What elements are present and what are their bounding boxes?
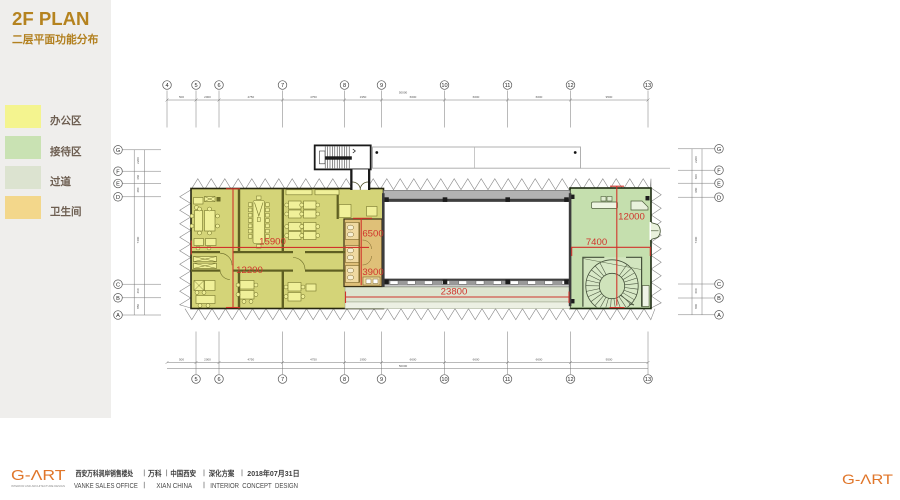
svg-text:13: 13 xyxy=(645,377,651,383)
svg-text:E: E xyxy=(116,182,120,188)
svg-text:6600: 6600 xyxy=(473,95,480,99)
svg-text:6600: 6600 xyxy=(410,95,417,99)
svg-text:460: 460 xyxy=(136,288,140,293)
svg-text:10: 10 xyxy=(441,83,447,89)
svg-text:6500: 6500 xyxy=(362,229,383,240)
svg-text:4750: 4750 xyxy=(247,95,254,99)
svg-text:4750: 4750 xyxy=(310,95,317,99)
svg-text:460: 460 xyxy=(136,174,140,179)
svg-text:INTERIOR AND ARCHITECTURE DESI: INTERIOR AND ARCHITECTURE DESIGN xyxy=(11,484,65,488)
svg-text:A: A xyxy=(717,313,721,319)
svg-text:980: 980 xyxy=(694,187,698,192)
svg-text:500: 500 xyxy=(179,95,184,99)
svg-text:2200: 2200 xyxy=(694,156,698,163)
svg-text:13: 13 xyxy=(645,83,651,89)
svg-text:480: 480 xyxy=(136,187,140,192)
svg-text:深化方案: 深化方案 xyxy=(209,468,235,478)
svg-text:5: 5 xyxy=(194,83,197,89)
svg-text:12: 12 xyxy=(567,83,573,89)
svg-text:C: C xyxy=(116,282,120,288)
svg-text:7400: 7400 xyxy=(694,236,698,243)
svg-text:C: C xyxy=(717,282,721,288)
svg-text:800: 800 xyxy=(694,304,698,309)
svg-text:9500: 9500 xyxy=(606,357,613,361)
svg-text:G-ΛRT: G-ΛRT xyxy=(11,468,66,484)
svg-text:B: B xyxy=(717,296,721,302)
svg-text:D: D xyxy=(717,195,721,201)
svg-text:6600: 6600 xyxy=(473,357,480,361)
svg-text:F: F xyxy=(717,168,721,174)
svg-text:1950: 1950 xyxy=(360,95,367,99)
svg-text:2000: 2000 xyxy=(204,95,211,99)
svg-text:9: 9 xyxy=(380,83,383,89)
svg-text:600: 600 xyxy=(694,174,698,179)
svg-text:4: 4 xyxy=(165,83,168,89)
svg-text:5: 5 xyxy=(194,377,197,383)
svg-text:12000: 12000 xyxy=(618,212,645,223)
svg-text:2000: 2000 xyxy=(204,357,211,361)
svg-text:E: E xyxy=(717,181,721,187)
svg-text:4750: 4750 xyxy=(247,357,254,361)
svg-text:3900: 3900 xyxy=(362,267,383,278)
svg-text:11: 11 xyxy=(505,83,511,89)
svg-text:6600: 6600 xyxy=(536,95,543,99)
svg-text:7400: 7400 xyxy=(136,236,140,243)
svg-text:D: D xyxy=(116,195,120,201)
svg-text:西安万科涧岸销售楼处: 西安万科涧岸销售楼处 xyxy=(76,468,134,478)
svg-text:11: 11 xyxy=(505,377,511,383)
svg-text:万科: 万科 xyxy=(147,468,162,478)
svg-text:中国西安: 中国西安 xyxy=(170,468,196,478)
svg-text:12200: 12200 xyxy=(236,265,263,276)
svg-text:4750: 4750 xyxy=(310,357,317,361)
svg-text:50000: 50000 xyxy=(399,91,408,95)
svg-text:8: 8 xyxy=(343,377,346,383)
svg-text:XIAN CHINA: XIAN CHINA xyxy=(156,481,193,490)
svg-text:1950: 1950 xyxy=(360,357,367,361)
svg-text:7: 7 xyxy=(281,377,284,383)
svg-text:9: 9 xyxy=(380,377,383,383)
svg-text:6: 6 xyxy=(217,83,220,89)
svg-text:500: 500 xyxy=(179,357,184,361)
svg-text:2200: 2200 xyxy=(136,157,140,164)
svg-text:9500: 9500 xyxy=(606,95,613,99)
svg-text:7400: 7400 xyxy=(586,237,607,248)
svg-text:10: 10 xyxy=(441,377,447,383)
svg-text:6: 6 xyxy=(217,377,220,383)
svg-text:B: B xyxy=(116,296,120,302)
svg-text:6600: 6600 xyxy=(410,357,417,361)
svg-text:23800: 23800 xyxy=(441,287,468,298)
svg-text:6600: 6600 xyxy=(536,357,543,361)
svg-text:G: G xyxy=(116,148,120,154)
svg-text:8: 8 xyxy=(343,83,346,89)
svg-text:15900: 15900 xyxy=(259,237,286,248)
svg-text:600: 600 xyxy=(694,288,698,293)
svg-text:G-ΛRT: G-ΛRT xyxy=(842,472,894,487)
svg-text:A: A xyxy=(116,313,120,319)
svg-text:12: 12 xyxy=(567,377,573,383)
svg-text:7: 7 xyxy=(281,83,284,89)
svg-text:2018年07月31日: 2018年07月31日 xyxy=(247,468,299,478)
svg-text:G: G xyxy=(717,147,721,153)
svg-text:F: F xyxy=(116,169,120,175)
svg-text:850: 850 xyxy=(136,304,140,309)
svg-text:VANKE SALES OFFICE: VANKE SALES OFFICE xyxy=(74,481,138,490)
svg-text:50000: 50000 xyxy=(399,364,408,368)
svg-text:INTERIOR CONCEPT DESIGN: INTERIOR CONCEPT DESIGN xyxy=(210,481,298,490)
